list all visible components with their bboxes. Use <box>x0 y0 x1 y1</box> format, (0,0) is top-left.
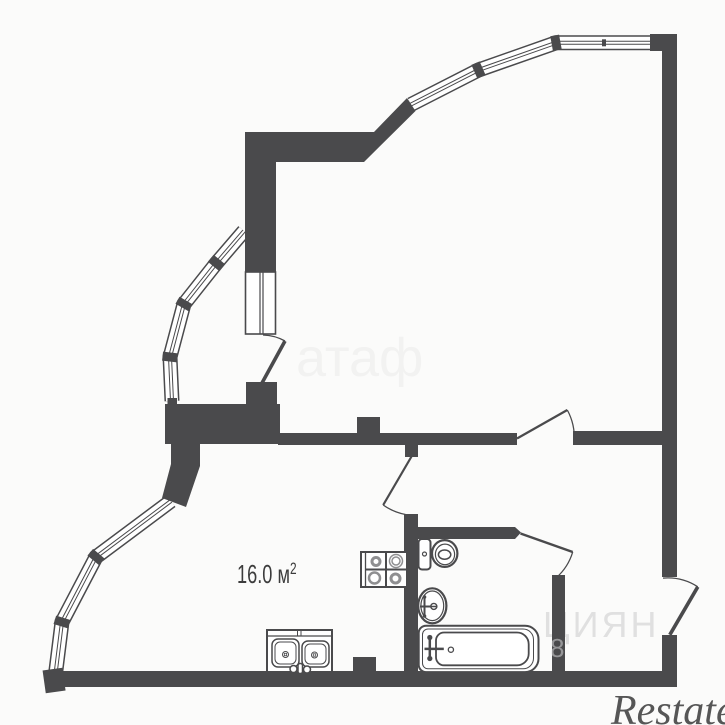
svg-text:Restate: Restate <box>610 688 725 725</box>
svg-text:16.0 м2: 16.0 м2 <box>237 560 297 589</box>
svg-text:атаф: атаф <box>296 328 423 388</box>
svg-text:8: 8 <box>550 633 564 663</box>
